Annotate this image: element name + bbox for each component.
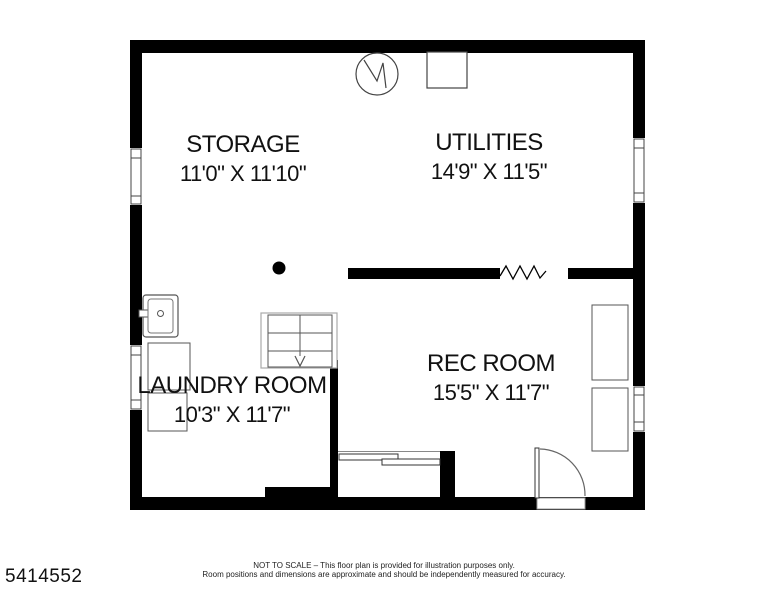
closet-right-wall <box>440 451 455 497</box>
laundry-sink-icon <box>139 295 178 337</box>
wall-right <box>633 40 645 510</box>
room-dimensions-utilities: 14'9" X 11'5" <box>431 157 547 186</box>
closet-sliding-door-icon <box>338 452 440 466</box>
window-icon-right-upper <box>631 138 647 203</box>
bottom-wall-stub <box>265 487 332 497</box>
laundry-rec-divider-wall <box>330 360 338 497</box>
room-name-rec-room: REC ROOM <box>427 349 555 378</box>
floorplan-drawing <box>0 0 768 594</box>
furnace-icon <box>427 52 467 88</box>
wall-top <box>130 40 645 53</box>
water-heater-icon <box>356 53 398 95</box>
disclaimer-line-1: NOT TO SCALE – This floor plan is provid… <box>0 561 768 570</box>
room-label-laundry-room: LAUNDRY ROOM 10'3" X 11'7" <box>137 371 326 429</box>
window-icon-right-lower <box>631 386 647 432</box>
wall-left <box>130 40 142 510</box>
room-dimensions-storage: 11'0" X 11'10" <box>180 159 306 188</box>
stairs-icon <box>261 313 337 368</box>
mid-wall-left-segment <box>348 268 500 279</box>
wall-break-icon <box>500 266 546 279</box>
mid-wall-right-segment <box>568 268 633 279</box>
listing-id: 5414552 <box>5 566 82 588</box>
room-name-laundry-room: LAUNDRY ROOM <box>137 371 326 400</box>
support-column-dot <box>273 262 286 275</box>
disclaimer: NOT TO SCALE – This floor plan is provid… <box>0 561 768 579</box>
furniture-rect-lower <box>592 388 628 451</box>
door-swing-icon <box>535 448 585 509</box>
room-label-storage: STORAGE 11'0" X 11'10" <box>180 130 306 188</box>
window-icon-left-upper <box>128 148 144 205</box>
floorplan-canvas: STORAGE 11'0" X 11'10" UTILITIES 14'9" X… <box>0 0 768 594</box>
disclaimer-line-2: Room positions and dimensions are approx… <box>0 570 768 579</box>
rec-room-furniture <box>592 305 628 451</box>
room-label-utilities: UTILITIES 14'9" X 11'5" <box>431 128 547 186</box>
room-dimensions-rec-room: 15'5" X 11'7" <box>427 378 555 407</box>
room-name-utilities: UTILITIES <box>431 128 547 157</box>
room-label-rec-room: REC ROOM 15'5" X 11'7" <box>427 349 555 407</box>
room-dimensions-laundry-room: 10'3" X 11'7" <box>137 400 326 429</box>
room-name-storage: STORAGE <box>180 130 306 159</box>
furniture-rect-upper <box>592 305 628 380</box>
